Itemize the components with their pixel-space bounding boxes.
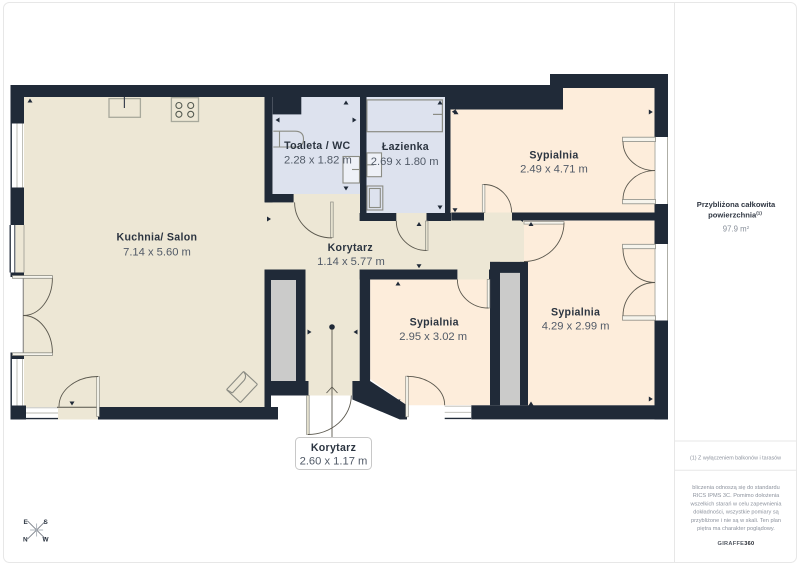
svg-text:E: E <box>24 519 29 526</box>
svg-text:Kuchnia/ Salon: Kuchnia/ Salon <box>117 232 198 244</box>
svg-text:1.14 x 5.77 m: 1.14 x 5.77 m <box>317 256 385 268</box>
svg-text:Korytarz: Korytarz <box>311 442 356 454</box>
svg-text:GIRAFFE360: GIRAFFE360 <box>718 541 755 547</box>
svg-text:RICS IPMS 3C. Pomimo dołożenia: RICS IPMS 3C. Pomimo dołożenia <box>693 493 780 499</box>
svg-text:2.60 x 1.17 m: 2.60 x 1.17 m <box>300 456 368 468</box>
svg-text:S: S <box>44 519 49 526</box>
svg-text:Korytarz: Korytarz <box>328 242 373 254</box>
svg-text:piętra ma charakter poglądowy.: piętra ma charakter poglądowy. <box>697 526 775 532</box>
svg-text:Sypialnia: Sypialnia <box>410 316 459 328</box>
svg-text:N: N <box>23 537 28 544</box>
svg-text:Sypialnia: Sypialnia <box>529 150 578 162</box>
svg-text:dokładności, wszystkie pomiary: dokładności, wszystkie pomiary są <box>693 510 779 516</box>
svg-text:Łazienka: Łazienka <box>382 141 429 153</box>
svg-text:bliczenia odnoszą się do stand: bliczenia odnoszą się do standardu <box>692 485 779 491</box>
svg-text:2.49 x 4.71 m: 2.49 x 4.71 m <box>520 163 588 175</box>
svg-text:(1) Z wyłączeniem balkonów i t: (1) Z wyłączeniem balkonów i tarasów <box>690 456 781 462</box>
svg-text:4.29 x 2.99 m: 4.29 x 2.99 m <box>542 321 610 333</box>
svg-text:Sypialnia: Sypialnia <box>551 307 600 319</box>
svg-text:7.14 x 5.60 m: 7.14 x 5.60 m <box>123 247 191 259</box>
svg-text:2.95 x 3.02 m: 2.95 x 3.02 m <box>399 331 467 343</box>
svg-text:Przybliżona całkowita: Przybliżona całkowita <box>697 200 776 209</box>
svg-text:wszelkich starań w celu zapewn: wszelkich starań w celu zapewnienia <box>689 501 782 507</box>
svg-text:przybliżone i nie są w skali.: przybliżone i nie są w skali. Ten plan <box>691 518 781 524</box>
svg-text:powierzchnia(1): powierzchnia(1) <box>708 211 762 220</box>
svg-text:Toaleta / WC: Toaleta / WC <box>284 140 350 152</box>
svg-text:2.28 x 1.82 m: 2.28 x 1.82 m <box>284 154 352 166</box>
svg-text:2.69 x 1.80 m: 2.69 x 1.80 m <box>371 156 439 168</box>
svg-text:97.9 m2: 97.9 m2 <box>723 225 750 234</box>
svg-text:W: W <box>43 537 50 544</box>
